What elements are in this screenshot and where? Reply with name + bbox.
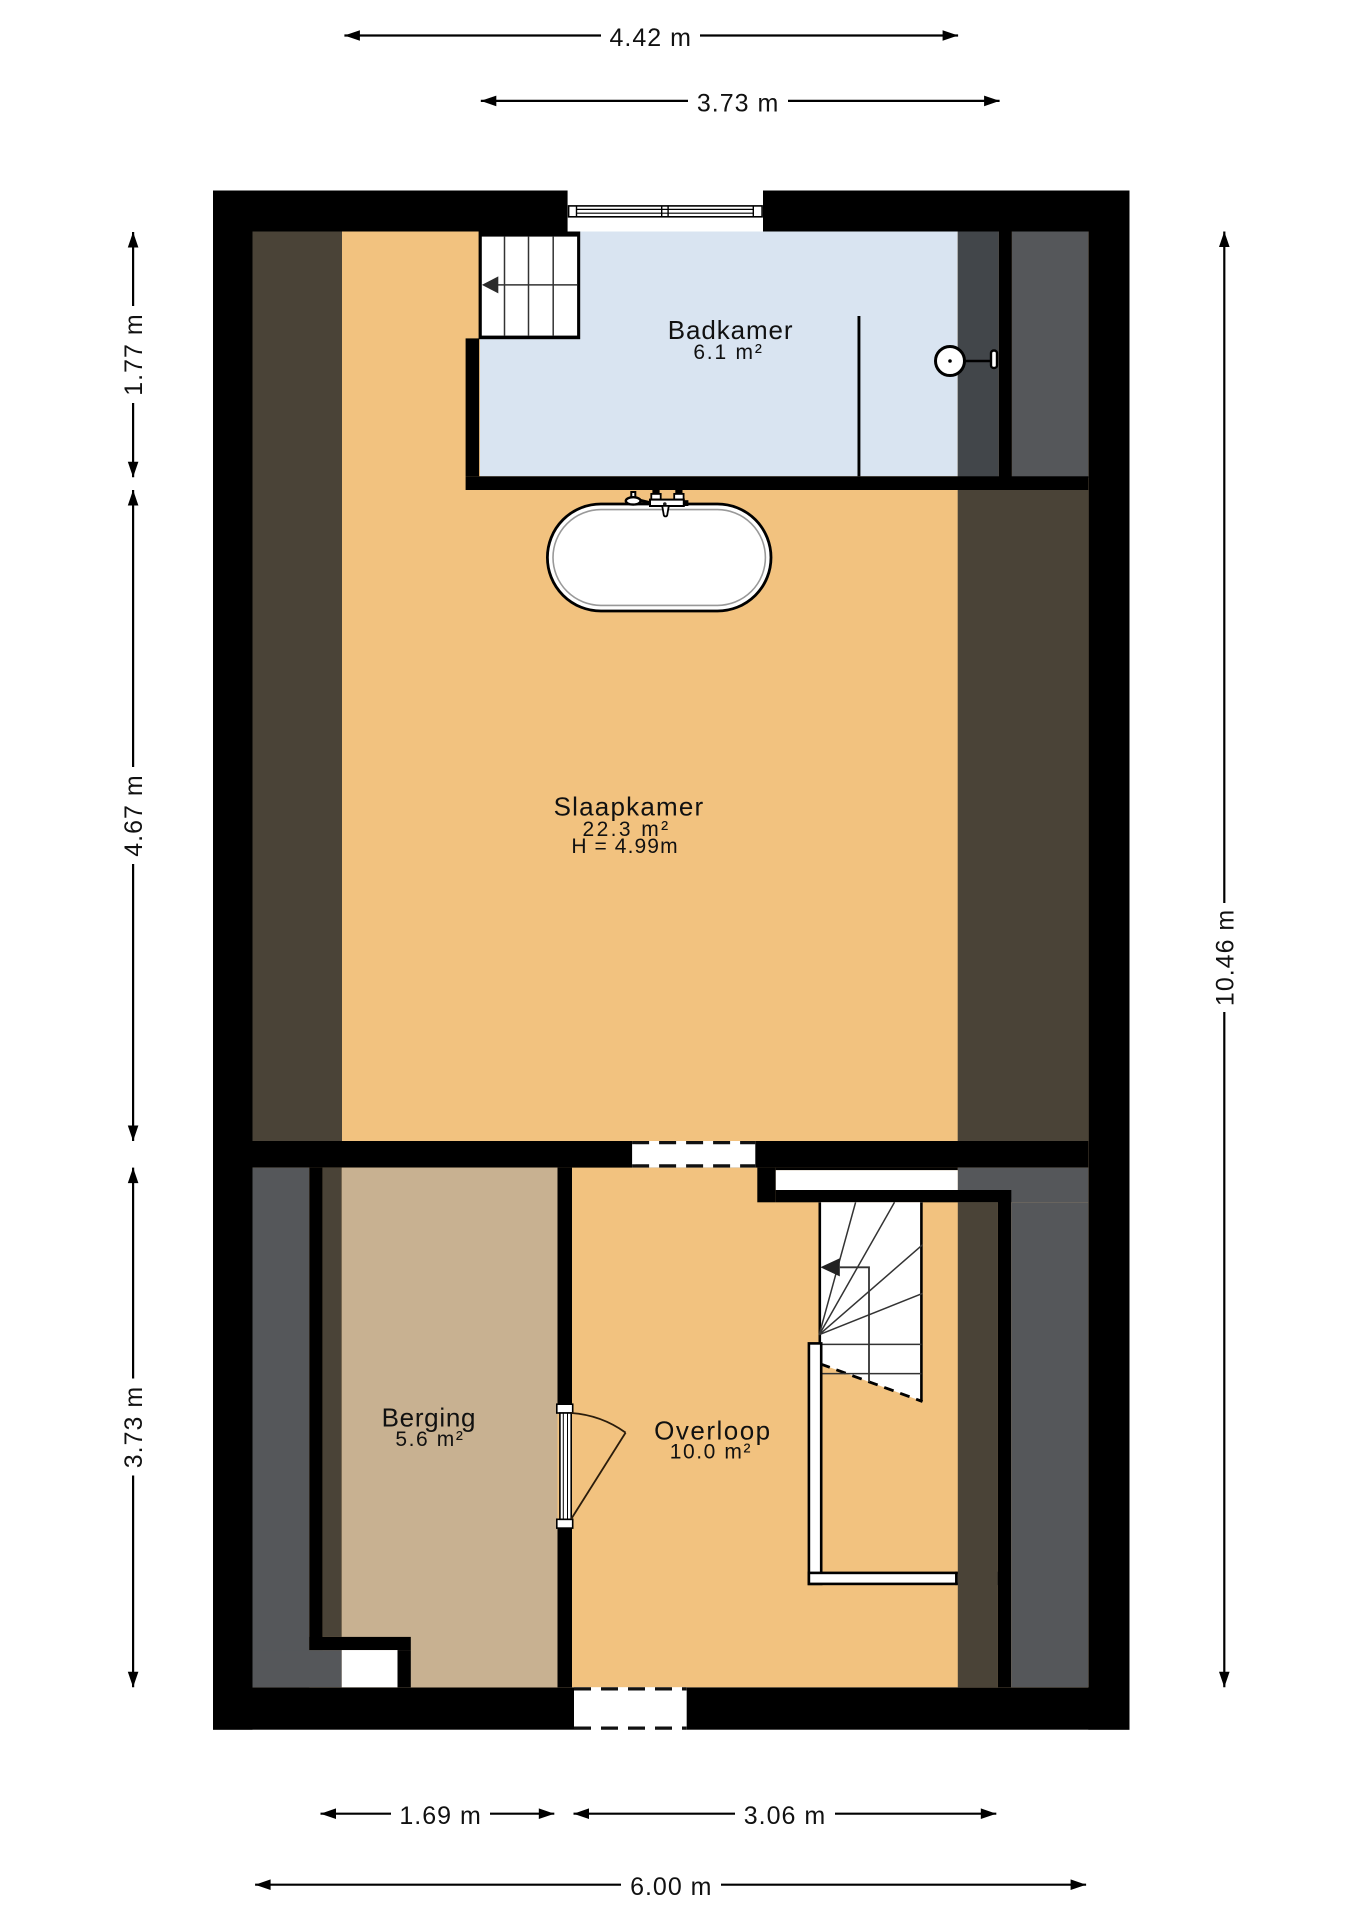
svg-text:H = 4.99m: H = 4.99m xyxy=(571,835,678,858)
svg-text:Slaapkamer: Slaapkamer xyxy=(554,792,705,822)
svg-text:10.0 m²: 10.0 m² xyxy=(670,1440,752,1463)
svg-text:5.6 m²: 5.6 m² xyxy=(395,1428,464,1451)
svg-text:1.77 m: 1.77 m xyxy=(120,313,148,395)
svg-text:4.42 m: 4.42 m xyxy=(609,24,691,52)
svg-text:4.67 m: 4.67 m xyxy=(120,774,148,856)
svg-text:3.06 m: 3.06 m xyxy=(744,1802,826,1830)
svg-text:10.46 m: 10.46 m xyxy=(1211,909,1239,1006)
svg-text:1.69 m: 1.69 m xyxy=(399,1802,481,1830)
svg-text:6.00 m: 6.00 m xyxy=(630,1873,712,1901)
svg-text:3.73 m: 3.73 m xyxy=(120,1386,148,1468)
svg-text:3.73 m: 3.73 m xyxy=(697,89,779,117)
svg-text:6.1 m²: 6.1 m² xyxy=(693,341,763,364)
